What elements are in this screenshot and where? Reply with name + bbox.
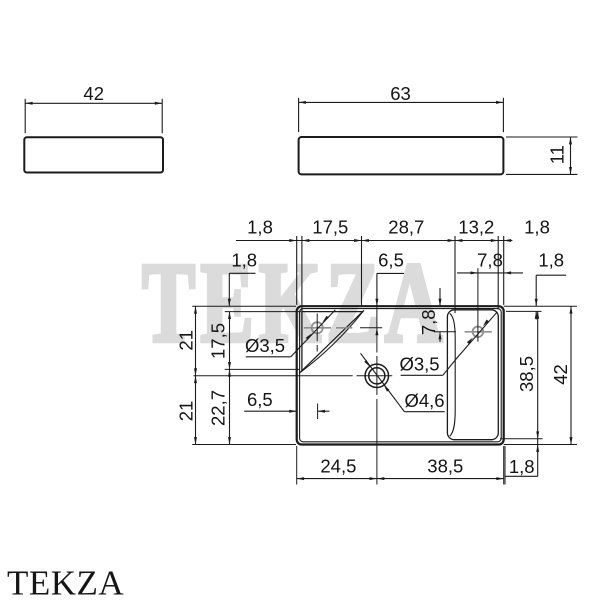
svg-text:24,5: 24,5	[320, 455, 356, 476]
svg-text:17,5: 17,5	[312, 217, 348, 238]
svg-text:21: 21	[175, 401, 196, 422]
svg-text:42: 42	[550, 364, 571, 385]
svg-text:11: 11	[547, 145, 568, 164]
svg-text:63: 63	[390, 83, 411, 104]
svg-text:1,8: 1,8	[231, 250, 257, 271]
svg-text:Ø3,5: Ø3,5	[245, 335, 285, 356]
svg-text:22,7: 22,7	[207, 390, 228, 426]
svg-text:7,8: 7,8	[418, 309, 439, 335]
svg-text:1,8: 1,8	[538, 250, 564, 271]
svg-text:17,5: 17,5	[207, 323, 228, 359]
svg-text:1,8: 1,8	[524, 217, 550, 238]
svg-text:6,5: 6,5	[247, 389, 273, 410]
svg-text:13,2: 13,2	[458, 217, 494, 238]
svg-text:38,5: 38,5	[516, 356, 537, 392]
svg-text:42: 42	[83, 83, 104, 104]
svg-text:6,5: 6,5	[378, 250, 404, 271]
svg-text:38,5: 38,5	[427, 455, 463, 476]
svg-text:28,7: 28,7	[388, 217, 424, 238]
svg-text:Ø3,5: Ø3,5	[399, 354, 439, 375]
svg-text:TEKZA: TEKZA	[7, 564, 124, 600]
svg-text:1,8: 1,8	[247, 217, 273, 238]
svg-text:21: 21	[175, 330, 196, 351]
svg-text:1,8: 1,8	[509, 456, 535, 477]
svg-text:7,8: 7,8	[477, 250, 503, 271]
svg-text:Ø4,6: Ø4,6	[404, 390, 444, 411]
